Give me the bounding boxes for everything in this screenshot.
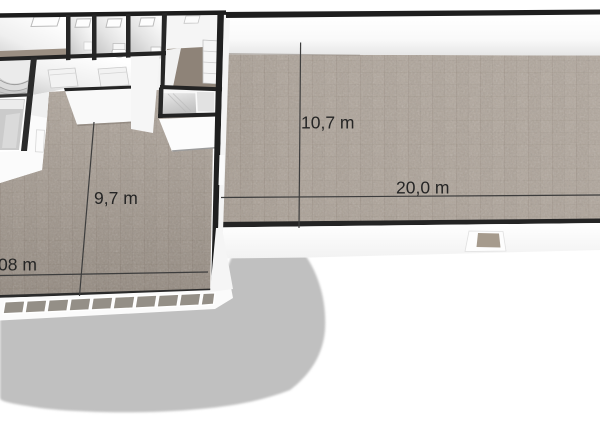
svg-text:10,7 m: 10,7 m xyxy=(301,113,355,133)
svg-text:08 m: 08 m xyxy=(0,255,37,275)
svg-text:20,0 m: 20,0 m xyxy=(396,178,450,198)
svg-text:9,7 m: 9,7 m xyxy=(94,188,138,208)
